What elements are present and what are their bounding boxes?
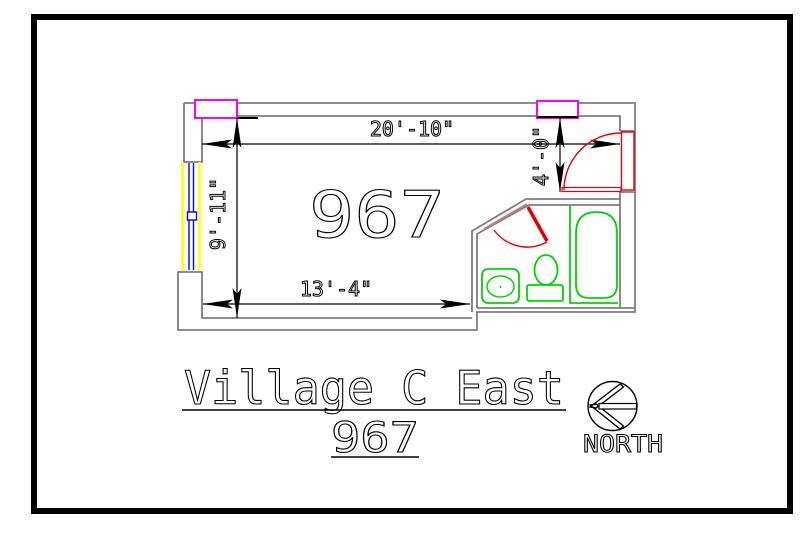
north-compass <box>588 382 637 431</box>
north-label: NORTH <box>583 430 663 458</box>
bathroom-door-swing-arc <box>494 230 547 247</box>
sink-drain <box>500 286 502 288</box>
cad-sheet: 20'-10" 9'-11" 13'-4" 4'-0" 967 Village … <box>0 0 808 544</box>
room-number: 967 <box>309 179 445 253</box>
entry-door-swing-arc <box>564 133 621 190</box>
floor-plan-canvas: 20'-10" 9'-11" 13'-4" 4'-0" 967 Village … <box>0 0 808 544</box>
toilet-bowl <box>535 255 558 285</box>
entry-door-open-leaf <box>562 188 621 192</box>
window-mullion <box>188 212 197 220</box>
bathtub <box>576 212 617 298</box>
dim-text-entry: 4'-0" <box>529 126 553 186</box>
dim-text-left: 9'-11" <box>206 178 230 250</box>
tub-enclosure <box>570 205 618 303</box>
dim-text-top: 20'-10" <box>370 117 454 141</box>
compass-arrow-shaft <box>599 404 637 410</box>
bathroom-door-closed-leaf <box>484 204 527 229</box>
bathroom-door-leaf <box>528 207 547 241</box>
title-line1: Village C East <box>184 361 564 415</box>
toilet-tank <box>527 285 563 301</box>
door-jambs <box>620 131 635 192</box>
title-block: Village C East 967 <box>182 361 566 462</box>
entry-door-closed-leaf <box>622 132 635 190</box>
title-line2: 967 <box>331 413 419 462</box>
left-window <box>183 162 200 271</box>
window-marker-right <box>537 101 578 118</box>
dim-text-bottom: 13'-4" <box>300 277 372 301</box>
window-marker-left <box>195 100 237 118</box>
